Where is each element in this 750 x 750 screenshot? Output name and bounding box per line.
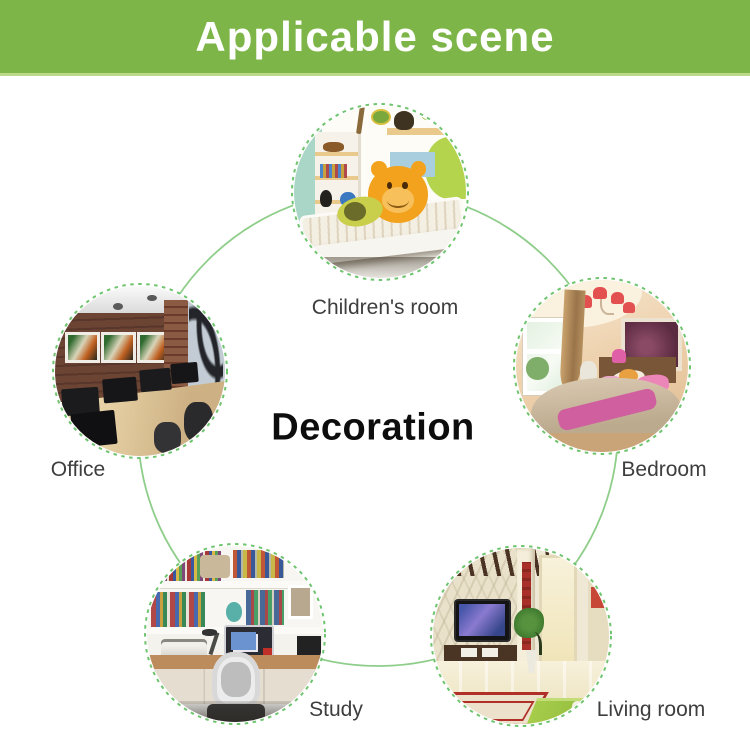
bench-drawer xyxy=(482,648,498,657)
wall-decal xyxy=(371,109,390,125)
white-ball xyxy=(572,701,583,712)
bench-drawer xyxy=(461,648,477,657)
bedroom-floor xyxy=(516,433,688,452)
right-wall xyxy=(588,548,609,671)
bear-smile xyxy=(387,192,409,208)
study-photo xyxy=(147,546,323,722)
monitor-screen xyxy=(231,632,256,650)
globe xyxy=(226,602,242,621)
monitor xyxy=(70,410,117,448)
framed-picture xyxy=(65,332,100,364)
office-photo xyxy=(55,286,225,456)
under-bed-shadow xyxy=(294,257,466,278)
penguin-toy xyxy=(320,190,332,207)
ceiling-spotlight xyxy=(79,296,89,303)
scene-label-children-room: Children's room xyxy=(312,296,458,320)
scene-label-living-room: Living room xyxy=(597,698,706,722)
monitor xyxy=(170,361,199,384)
framed-picture xyxy=(101,332,136,364)
desk-lamp-head xyxy=(202,629,218,636)
top-shelf xyxy=(387,128,452,135)
office-chair xyxy=(184,402,213,443)
monitor xyxy=(139,368,171,393)
chandelier-shade xyxy=(623,302,635,312)
photo-frame xyxy=(288,585,313,619)
pink-lamp xyxy=(612,349,626,363)
scene-label-office: Office xyxy=(51,458,105,482)
plush-monkey xyxy=(394,111,415,130)
book-row xyxy=(320,164,348,178)
office-chair xyxy=(154,422,181,453)
office-chair-mesh xyxy=(221,662,251,697)
bookshelf-books xyxy=(246,590,285,625)
poster: Applicable scene xyxy=(0,0,750,750)
chandelier-shade xyxy=(593,287,607,299)
chandelier-shade xyxy=(611,292,625,304)
toy-binoculars xyxy=(323,142,344,152)
bear-ear-left xyxy=(371,161,386,176)
hanging-branch xyxy=(356,106,365,134)
green-box xyxy=(421,108,447,120)
scene-label-bedroom: Bedroom xyxy=(621,458,706,482)
bookshelf-books xyxy=(233,550,284,578)
children-room-photo xyxy=(294,106,466,278)
scene-label-study: Study xyxy=(309,698,363,722)
tv-screen xyxy=(459,604,505,636)
study-floor-shadow xyxy=(147,701,323,722)
living-room-photo xyxy=(433,548,609,724)
center-title: Decoration xyxy=(271,407,474,450)
bear-eye-left xyxy=(387,182,392,189)
doorway xyxy=(539,555,578,664)
window-greenery xyxy=(526,357,548,379)
monitor xyxy=(102,376,138,403)
ceiling-spotlight xyxy=(113,303,123,310)
shelf-basket xyxy=(200,555,230,578)
tv-bench xyxy=(444,645,518,661)
bear-eye-right xyxy=(402,182,407,189)
bedroom-photo xyxy=(516,280,688,452)
bear-ear-right xyxy=(411,161,426,176)
window-bar xyxy=(525,349,561,354)
bookshelf-books xyxy=(151,592,206,627)
red-wall-accent xyxy=(591,587,605,608)
